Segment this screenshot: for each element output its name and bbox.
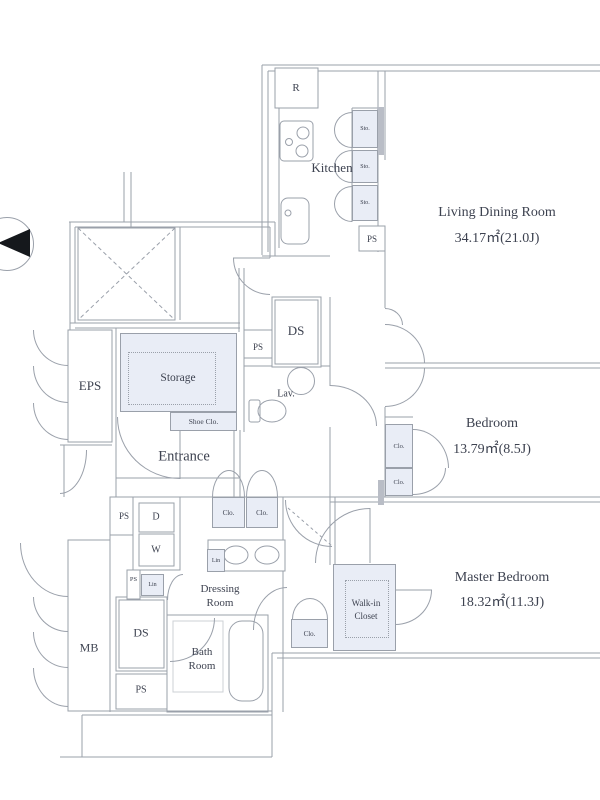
kitchen-label: Kitchen <box>311 160 352 176</box>
storage-small-1: Sto. <box>352 110 378 148</box>
storage-small-3: Sto. <box>352 185 378 221</box>
duct-space-upper-label: DS <box>288 323 305 339</box>
bedroom-closet-2: Clo. <box>385 468 413 496</box>
bedroom-closet-1: Clo. <box>385 424 413 468</box>
pipe-space-lower-label: PS <box>135 685 146 696</box>
lavatory-label: Lav. <box>277 389 294 400</box>
bedroom-area: 13.79㎡(8.5J) <box>453 438 531 458</box>
dressing-room-label-line2: Room <box>207 597 234 609</box>
north-arrow-icon <box>0 229 30 257</box>
washer-label: W <box>151 545 160 556</box>
walk-in-closet-inner-dotted <box>345 580 389 638</box>
bathtub <box>229 621 263 701</box>
master-bedroom-area: 18.32㎡(11.3J) <box>460 591 544 611</box>
linen-1: Lin <box>141 574 164 596</box>
floor-plan: Sto. Sto. Sto. Shoe Clo. Clo. Clo. Clo. … <box>0 0 600 800</box>
kitchen-sink <box>281 198 309 244</box>
dressing-room-label-line1: Dressing <box>200 583 239 595</box>
stove-burner <box>296 145 308 157</box>
pipe-space-kitchen-label: PS <box>367 234 377 244</box>
stove-burner <box>297 127 309 139</box>
shoe-closet: Shoe Clo. <box>170 412 237 431</box>
meter-box-label: MB <box>80 641 99 656</box>
stove-counter <box>280 121 313 161</box>
master-bedroom-label: Master Bedroom <box>455 570 549 586</box>
master-closet: Clo. <box>291 619 328 648</box>
bath-room-label-line2: Room <box>189 660 216 672</box>
eps-label: EPS <box>79 378 101 394</box>
entrance-label: Entrance <box>158 449 210 466</box>
dryer-label: D <box>152 512 159 523</box>
pipe-space-vertical-label: PS <box>129 576 138 583</box>
refrigerator-label: R <box>292 82 299 94</box>
pipe-space-vertical-box <box>127 570 140 599</box>
pipe-space-dressing-label: PS <box>119 511 129 521</box>
hall-closet-2: Clo. <box>246 497 278 528</box>
bath-room-label-line1: Bath <box>192 646 213 658</box>
toilet-bowl <box>258 400 286 422</box>
meter-box <box>68 540 110 711</box>
sink-drain <box>285 210 291 216</box>
storage-small-2: Sto. <box>352 150 378 183</box>
floor-plan-linework <box>0 0 600 800</box>
void-shaft <box>78 228 175 320</box>
linen-2: Lin <box>207 549 225 572</box>
hall-closet-1: Clo. <box>212 497 245 528</box>
storage-label: Storage <box>160 372 195 384</box>
duct-space-lower-label: DS <box>133 626 148 641</box>
walk-in-closet-label-line1: Walk-in <box>352 598 381 608</box>
living-dining-area: 34.17㎡(21.0J) <box>455 227 540 247</box>
walk-in-closet-label-line2: Closet <box>354 611 377 621</box>
pipe-space-upper-label: PS <box>253 342 263 352</box>
stove-burner <box>286 139 293 146</box>
living-dining-label: Living Dining Room <box>438 205 555 221</box>
bedroom-label: Bedroom <box>466 416 518 432</box>
